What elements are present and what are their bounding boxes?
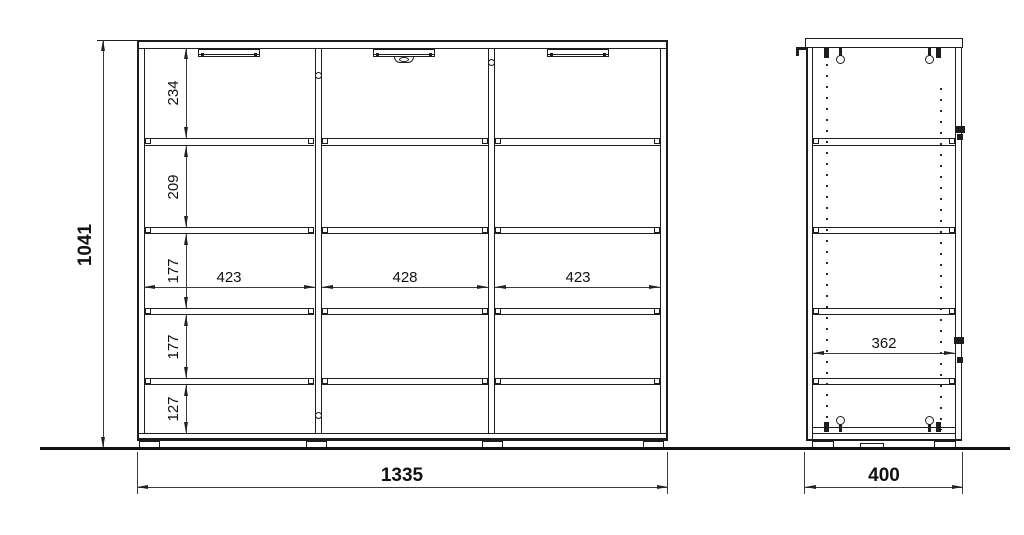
bottom-board-side: [813, 427, 955, 434]
dim-label-row-4: 177: [166, 325, 182, 369]
cam-bolt-stem: [928, 424, 931, 432]
fitting-hole: [315, 72, 322, 79]
arrowhead: [805, 485, 816, 489]
cam-lock: [836, 55, 845, 64]
dim-line-inner-depth: [813, 353, 955, 354]
dim-line-height: [103, 40, 104, 448]
arrowhead: [184, 315, 188, 326]
front-door-edge: [806, 48, 813, 441]
bolt-fitting: [824, 422, 829, 432]
dim-line-row: [186, 48, 187, 138]
wall-bracket: [957, 134, 963, 140]
left-panel-line: [144, 48, 145, 433]
shelf: [322, 378, 488, 385]
shelf: [495, 227, 660, 234]
dim-label-inner-depth: 362: [864, 336, 904, 352]
pin-hole-row: [826, 64, 828, 430]
arrowhead: [184, 234, 188, 245]
arrowhead: [184, 127, 188, 138]
shelf-side: [813, 138, 955, 146]
arrowhead: [952, 485, 963, 489]
shelf: [322, 308, 488, 315]
bolt-fitting: [936, 422, 941, 432]
arrowhead: [944, 351, 955, 355]
dim-line-depth: [805, 487, 963, 488]
dim-line-col: [322, 287, 488, 288]
arrowhead: [184, 48, 188, 59]
dim-label-row-1: 234: [166, 71, 182, 115]
dim-label-col-1: 423: [207, 270, 251, 286]
arrowhead: [495, 285, 506, 289]
shelf: [145, 138, 314, 146]
shelf: [322, 227, 488, 234]
shelf: [145, 308, 314, 315]
divider-1-line: [315, 48, 316, 433]
dim-label-overall-height: 1041: [77, 215, 95, 275]
door-handle: [547, 49, 609, 57]
divider-1-line: [321, 48, 322, 433]
dim-label-row-2: 209: [166, 165, 182, 209]
wall-bracket: [954, 337, 964, 344]
arrowhead: [184, 297, 188, 308]
cam-lock: [925, 55, 934, 64]
arrowhead: [322, 285, 333, 289]
fitting-hole: [315, 412, 322, 419]
arrowhead: [184, 385, 188, 396]
arrowhead: [184, 146, 188, 157]
top-panel: [805, 38, 963, 48]
arrowhead: [649, 285, 660, 289]
arrowhead: [813, 351, 824, 355]
shelf: [495, 378, 660, 385]
dim-label-col-2: 428: [383, 270, 427, 286]
arrowhead: [304, 285, 315, 289]
cam-bolt-stem: [839, 424, 842, 432]
dim-line-col: [144, 287, 315, 288]
shelf: [495, 138, 660, 146]
arrowhead: [477, 285, 488, 289]
back-panel-edge: [955, 48, 962, 441]
lock-cylinder: [394, 57, 414, 63]
door-handle: [198, 49, 260, 57]
shelf: [145, 378, 314, 385]
ground-line: [40, 447, 1010, 450]
dim-label-overall-depth: 400: [859, 467, 909, 485]
dim-line-width: [137, 487, 668, 488]
wall-bracket: [955, 126, 965, 133]
arrowhead: [184, 367, 188, 378]
wall-bracket: [796, 50, 799, 56]
shelf: [322, 138, 488, 146]
arrowhead: [184, 216, 188, 227]
arrowhead: [137, 485, 148, 489]
divider-2-line: [488, 48, 489, 433]
shelf: [495, 308, 660, 315]
arrowhead: [144, 285, 155, 289]
shelf-side: [813, 378, 955, 385]
arrowhead: [101, 40, 105, 51]
dim-label-col-3: 423: [556, 270, 600, 286]
bolt-fitting: [936, 48, 941, 58]
fitting-hole: [488, 59, 495, 66]
arrowhead: [184, 422, 188, 433]
bolt-fitting: [824, 48, 829, 58]
wall-bracket: [957, 357, 963, 363]
dim-label-overall-width: 1335: [377, 467, 427, 485]
bottom-board: [139, 433, 666, 439]
pin-hole-row: [940, 88, 942, 430]
right-panel-line: [660, 48, 661, 433]
shelf-side: [813, 227, 955, 234]
divider-2-line: [494, 48, 495, 433]
dim-label-row-5: 127: [166, 387, 182, 431]
shelf-side: [813, 308, 955, 315]
technical-drawing-canvas: 1041 1335 234 209 177 177 127 423: [0, 0, 1024, 535]
arrowhead: [657, 485, 668, 489]
dim-line-row: [186, 146, 187, 227]
dim-line-col: [495, 287, 660, 288]
shelf: [145, 227, 314, 234]
door-handle: [373, 49, 435, 57]
